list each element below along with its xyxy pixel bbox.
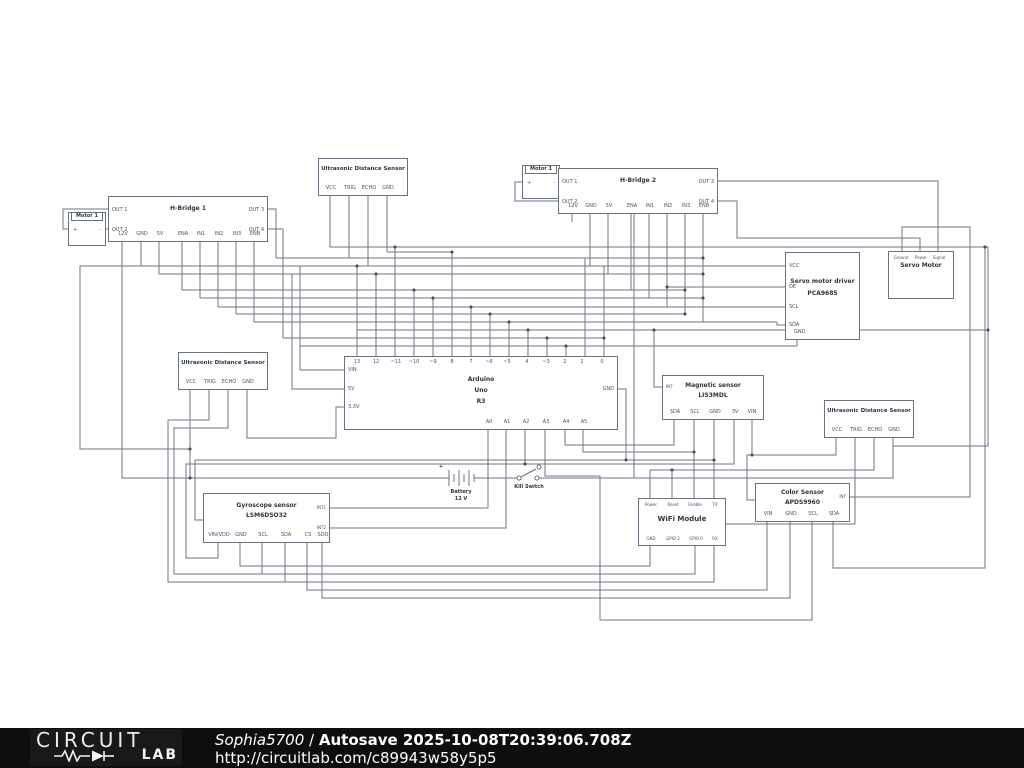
- footer-separator: /: [309, 731, 314, 749]
- pin-label: GND: [646, 537, 655, 541]
- pin-label: SCL: [258, 533, 267, 538]
- pin-label: A3: [543, 420, 550, 425]
- pin-label: Enable: [688, 503, 702, 507]
- pin-label: 5V: [157, 232, 164, 237]
- color-part: APDS9960: [756, 500, 849, 506]
- pin-label: SCL: [690, 410, 699, 415]
- pin-label: VCC: [789, 264, 799, 269]
- gyroscope-part: LSM6DSO32: [204, 513, 329, 519]
- footer-author: Sophia5700: [215, 731, 304, 749]
- pin-label: GND: [585, 204, 596, 209]
- motor-right-pin-plus: +: [527, 181, 531, 186]
- footer-url-link[interactable]: http://circuitlab.com/c89943w58y5p5: [215, 749, 497, 767]
- pin-label: SDA: [829, 512, 839, 517]
- pin-label: SCL: [808, 512, 817, 517]
- pin-label: TRIG: [344, 186, 356, 191]
- pin-label: ~10: [409, 360, 420, 365]
- footer-autosave-label: Autosave 2025-10-08T20:39:06.708Z: [319, 731, 632, 749]
- pin-label: GND: [709, 410, 720, 415]
- pin-label: OUT 3: [699, 180, 714, 185]
- pin-label: GND: [242, 380, 253, 385]
- circuitlab-footer-bar: CIRCUIT LAB Sophia5700 / Autosave 2025-1…: [0, 728, 1024, 768]
- h-bridge-1[interactable]: H-Bridge 1 OUT 1 OUT 2 OUT 3 OUT 4 12V G…: [108, 196, 268, 242]
- pin-label: Power: [645, 503, 657, 507]
- circuitlab-logo: CIRCUIT LAB: [30, 729, 182, 766]
- wifi-module[interactable]: Power Reset Enable TX WiFi Module GND GP…: [638, 498, 726, 546]
- pin-label: RX: [712, 537, 718, 541]
- gyroscope-sensor[interactable]: Gyroscope sensor LSM6DSO32 INT1 INT2 VIN…: [203, 493, 330, 543]
- magnetic-title: Magnetic sensor: [663, 383, 763, 389]
- pin-label: INT2: [317, 526, 326, 530]
- ultrasonic-sensor-top[interactable]: Ultrasonic Distance Sensor VCC TRIG ECHO…: [318, 158, 408, 196]
- pin-label: 5V: [348, 387, 355, 392]
- pin-label: VIN/VDD: [208, 533, 229, 538]
- pin-label: GND: [382, 186, 393, 191]
- pin-label: OUT 1: [562, 180, 577, 185]
- ultrasonic-top-title: Ultrasonic Distance Sensor: [319, 167, 407, 173]
- pin-label: A2: [523, 420, 530, 425]
- circuitlab-logo-text-bottom: LAB: [142, 748, 178, 762]
- gyroscope-title: Gyroscope sensor: [204, 503, 329, 509]
- circuitlab-schematic-page: Motor 1 + - H-Bridge 1 OUT 1 OUT 2 OUT 3…: [0, 0, 1024, 768]
- pin-label: CS: [305, 533, 312, 538]
- pin-label: 5V: [606, 204, 613, 209]
- pin-label: Power: [915, 256, 927, 260]
- pin-label: VIN: [764, 512, 773, 517]
- h-bridge-1-title: H-Bridge 1: [109, 206, 267, 212]
- pin-label: ~9: [429, 360, 436, 365]
- pin-label: IN3: [682, 204, 690, 209]
- wifi-title: WiFi Module: [639, 516, 725, 523]
- battery-label: Battery: [450, 489, 471, 495]
- pin-label: 13: [354, 360, 360, 365]
- pin-label: 2: [563, 360, 566, 365]
- pin-label: 3V: [732, 410, 739, 415]
- arduino-title: Uno: [345, 388, 617, 394]
- arduino-title: R3: [345, 399, 617, 405]
- arduino-title: Arduino: [345, 377, 617, 383]
- pin-label: VCC: [832, 428, 842, 433]
- footer-credit: Sophia5700 / Autosave 2025-10-08T20:39:0…: [215, 731, 632, 767]
- resistor-diode-logo-icon: [54, 749, 142, 762]
- pin-label: ENA: [178, 232, 188, 237]
- motor-left-title: Motor 1: [71, 212, 103, 221]
- pin-label: ENA: [627, 204, 637, 209]
- ultrasonic-right-title: Ultrasonic Distance Sensor: [825, 409, 913, 415]
- pin-label: IN1: [197, 232, 205, 237]
- motor-right-title: Motor 1: [525, 165, 557, 174]
- pin-label: GND: [888, 428, 899, 433]
- pin-label: IN1: [646, 204, 654, 209]
- servo-driver-part: PCA9685: [786, 291, 859, 297]
- pin-label: VCC: [326, 186, 336, 191]
- color-sensor[interactable]: Color Sensor APDS9960 INT VIN GND SCL SD…: [755, 483, 850, 522]
- pin-label: OUT 1: [112, 208, 127, 213]
- motor-left-pin-plus: +: [73, 228, 77, 233]
- pin-label: ECHO: [222, 380, 236, 385]
- pin-label: 4: [525, 360, 528, 365]
- pin-label: ~6: [485, 360, 492, 365]
- pin-label: A5: [581, 420, 588, 425]
- pin-label: 7: [469, 360, 472, 365]
- pin-label: SCL: [789, 305, 798, 310]
- battery-plus-sign: +: [439, 464, 443, 470]
- motor-left-pin-minus: -: [99, 228, 101, 233]
- pin-label: IN2: [215, 232, 223, 237]
- pin-label: INT1: [317, 506, 326, 510]
- pin-label: TX: [712, 503, 717, 507]
- pin-label: 3.3V: [348, 405, 359, 410]
- pin-label: 1: [580, 360, 583, 365]
- motor-left[interactable]: Motor 1 + -: [68, 212, 106, 246]
- pin-label: GND: [136, 232, 147, 237]
- ultrasonic-sensor-left[interactable]: Ultrasonic Distance Sensor VCC TRIG ECHO…: [178, 352, 268, 390]
- pin-label: GND: [785, 512, 796, 517]
- pin-label: A1: [504, 420, 511, 425]
- pin-label: 8: [450, 360, 453, 365]
- pin-label: 12: [373, 360, 379, 365]
- pin-label: GND: [603, 387, 614, 392]
- pin-label: 0: [600, 360, 603, 365]
- pin-label: Signal: [933, 256, 945, 260]
- pin-label: VCC: [186, 380, 196, 385]
- pin-label: Ground: [894, 256, 909, 260]
- pin-label: GPIO 0: [689, 537, 703, 541]
- pin-label: ~11: [391, 360, 402, 365]
- battery-voltage: 12 V: [455, 496, 468, 502]
- pin-label: IN3: [233, 232, 241, 237]
- pin-label: ENB: [699, 204, 709, 209]
- pin-label: 12V: [568, 204, 578, 209]
- servo-motor-driver[interactable]: Servo motor driver PCA9685 VCC OE SCL SD…: [785, 252, 860, 340]
- pin-label: GND: [794, 330, 805, 335]
- h-bridge-2[interactable]: H-Bridge 2 OUT 1 OUT 2 OUT 3 OUT 4 12V G…: [558, 168, 718, 214]
- color-title: Color Sensor: [756, 490, 849, 496]
- pin-label: A0: [486, 420, 493, 425]
- pin-label: VIN: [748, 410, 757, 415]
- arduino-uno[interactable]: Arduino Uno R3 13 12 ~11 ~10 ~9 8 7 ~6 ~…: [344, 356, 618, 430]
- pin-label: SDA: [670, 410, 680, 415]
- pin-label: A4: [563, 420, 570, 425]
- h-bridge-2-title: H-Bridge 2: [559, 178, 717, 184]
- pin-label: SDA: [789, 323, 799, 328]
- pin-label: ~3: [542, 360, 549, 365]
- magnetic-part: LIS3MDL: [663, 393, 763, 399]
- pin-label: ~5: [503, 360, 510, 365]
- pin-label: ENB: [250, 232, 260, 237]
- pin-label: SDO: [318, 533, 329, 538]
- motor-right-pin-minus: -: [553, 181, 555, 186]
- motor-right[interactable]: Motor 1 + -: [522, 165, 560, 199]
- ultrasonic-left-title: Ultrasonic Distance Sensor: [179, 361, 267, 367]
- pin-label: OUT 3: [249, 208, 264, 213]
- ultrasonic-sensor-right[interactable]: Ultrasonic Distance Sensor VCC TRIG ECHO…: [824, 400, 914, 438]
- pin-label: IN2: [664, 204, 672, 209]
- pin-label: INT: [839, 495, 846, 499]
- pin-label: TRIG: [204, 380, 216, 385]
- servo-driver-title: Servo motor driver: [786, 279, 859, 285]
- pin-label: GPIO 2: [666, 537, 680, 541]
- servo-motor[interactable]: Ground Power Signal Servo Motor: [888, 251, 954, 299]
- pin-label: VIN: [348, 368, 357, 373]
- pin-label: TRIG: [850, 428, 862, 433]
- pin-label: Reset: [667, 503, 678, 507]
- pin-label: GND: [235, 533, 246, 538]
- pin-label: ECHO: [362, 186, 376, 191]
- pin-label: 12V: [118, 232, 128, 237]
- pin-label: ECHO: [868, 428, 882, 433]
- servo-motor-title: Servo Motor: [889, 263, 953, 269]
- magnetic-sensor[interactable]: Magnetic sensor LIS3MDL INT SDA SCL GND …: [662, 375, 764, 420]
- kill-switch-label: Kill Switch: [514, 484, 544, 490]
- pin-label: SDA: [281, 533, 291, 538]
- pin-label: INT: [666, 385, 673, 389]
- pin-label: OE: [789, 285, 796, 290]
